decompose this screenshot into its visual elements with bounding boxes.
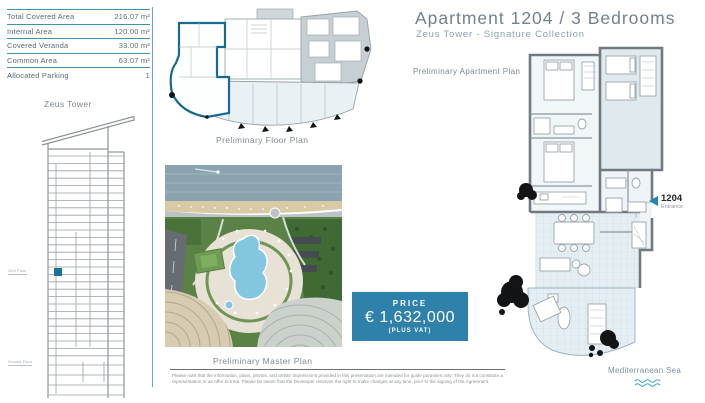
price-amount: € 1,632,000 bbox=[365, 309, 455, 327]
vertical-divider bbox=[152, 7, 153, 387]
brochure-page: Total Covered Area 216.07 m² Internal Ar… bbox=[0, 0, 705, 403]
floor-plan-caption: Preliminary Floor Plan bbox=[216, 135, 308, 145]
table-row: Allocated Parking 1 bbox=[7, 68, 150, 83]
sea-label: Mediterranean Sea bbox=[608, 366, 681, 375]
row-value: 63.07 m² bbox=[119, 56, 150, 65]
master-plan-image bbox=[165, 165, 342, 347]
master-plan-caption: Preliminary Master Plan bbox=[213, 356, 312, 366]
summary-table: Total Covered Area 216.07 m² Internal Ar… bbox=[7, 9, 150, 83]
row-value: 33.00 m² bbox=[119, 41, 150, 50]
table-row: Total Covered Area 216.07 m² bbox=[7, 10, 150, 25]
row-label: Covered Veranda bbox=[7, 41, 68, 50]
tower-title: Zeus Tower bbox=[44, 99, 92, 109]
floor-highlight-marker bbox=[54, 268, 62, 276]
page-subtitle: Zeus Tower - Signature Collection bbox=[416, 29, 585, 40]
page-title: Apartment 1204 / 3 Bedrooms bbox=[415, 8, 675, 29]
row-label: Total Covered Area bbox=[7, 12, 74, 21]
entrance-arrow-icon bbox=[649, 196, 658, 206]
entrance-callout: 1204 Entrance bbox=[649, 194, 683, 210]
price-vat-note: (PLUS VAT) bbox=[389, 328, 432, 334]
sea-waves-icon bbox=[634, 378, 664, 388]
row-label: Internal Area bbox=[7, 27, 52, 36]
apartment-plan-drawing bbox=[488, 42, 666, 367]
table-row: Covered Veranda 33.00 m² bbox=[7, 39, 150, 54]
disclaimer-rule bbox=[170, 369, 505, 370]
disclaimer-line-2: representation or an offer to treat. Ple… bbox=[172, 379, 510, 385]
row-value: 216.07 m² bbox=[114, 12, 150, 21]
tower-elevation-drawing bbox=[28, 112, 144, 400]
floor-plan-drawing bbox=[161, 3, 381, 133]
entrance-number: 1204 bbox=[661, 194, 683, 204]
price-label: PRICE bbox=[393, 299, 427, 308]
highlighted-unit-outline bbox=[171, 23, 229, 117]
row-label: Common Area bbox=[7, 56, 57, 65]
table-row: Common Area 63.07 m² bbox=[7, 54, 150, 69]
floor-annotation: 12th Floor bbox=[8, 269, 27, 275]
row-label: Allocated Parking bbox=[7, 71, 69, 80]
row-value: 1 bbox=[146, 71, 150, 80]
ground-annotation: Ground Floor bbox=[8, 360, 32, 366]
price-box: PRICE € 1,632,000 (PLUS VAT) bbox=[352, 292, 468, 341]
table-row: Internal Area 120.00 m² bbox=[7, 25, 150, 40]
row-value: 120.00 m² bbox=[114, 27, 150, 36]
entrance-label: Entrance bbox=[661, 204, 683, 210]
